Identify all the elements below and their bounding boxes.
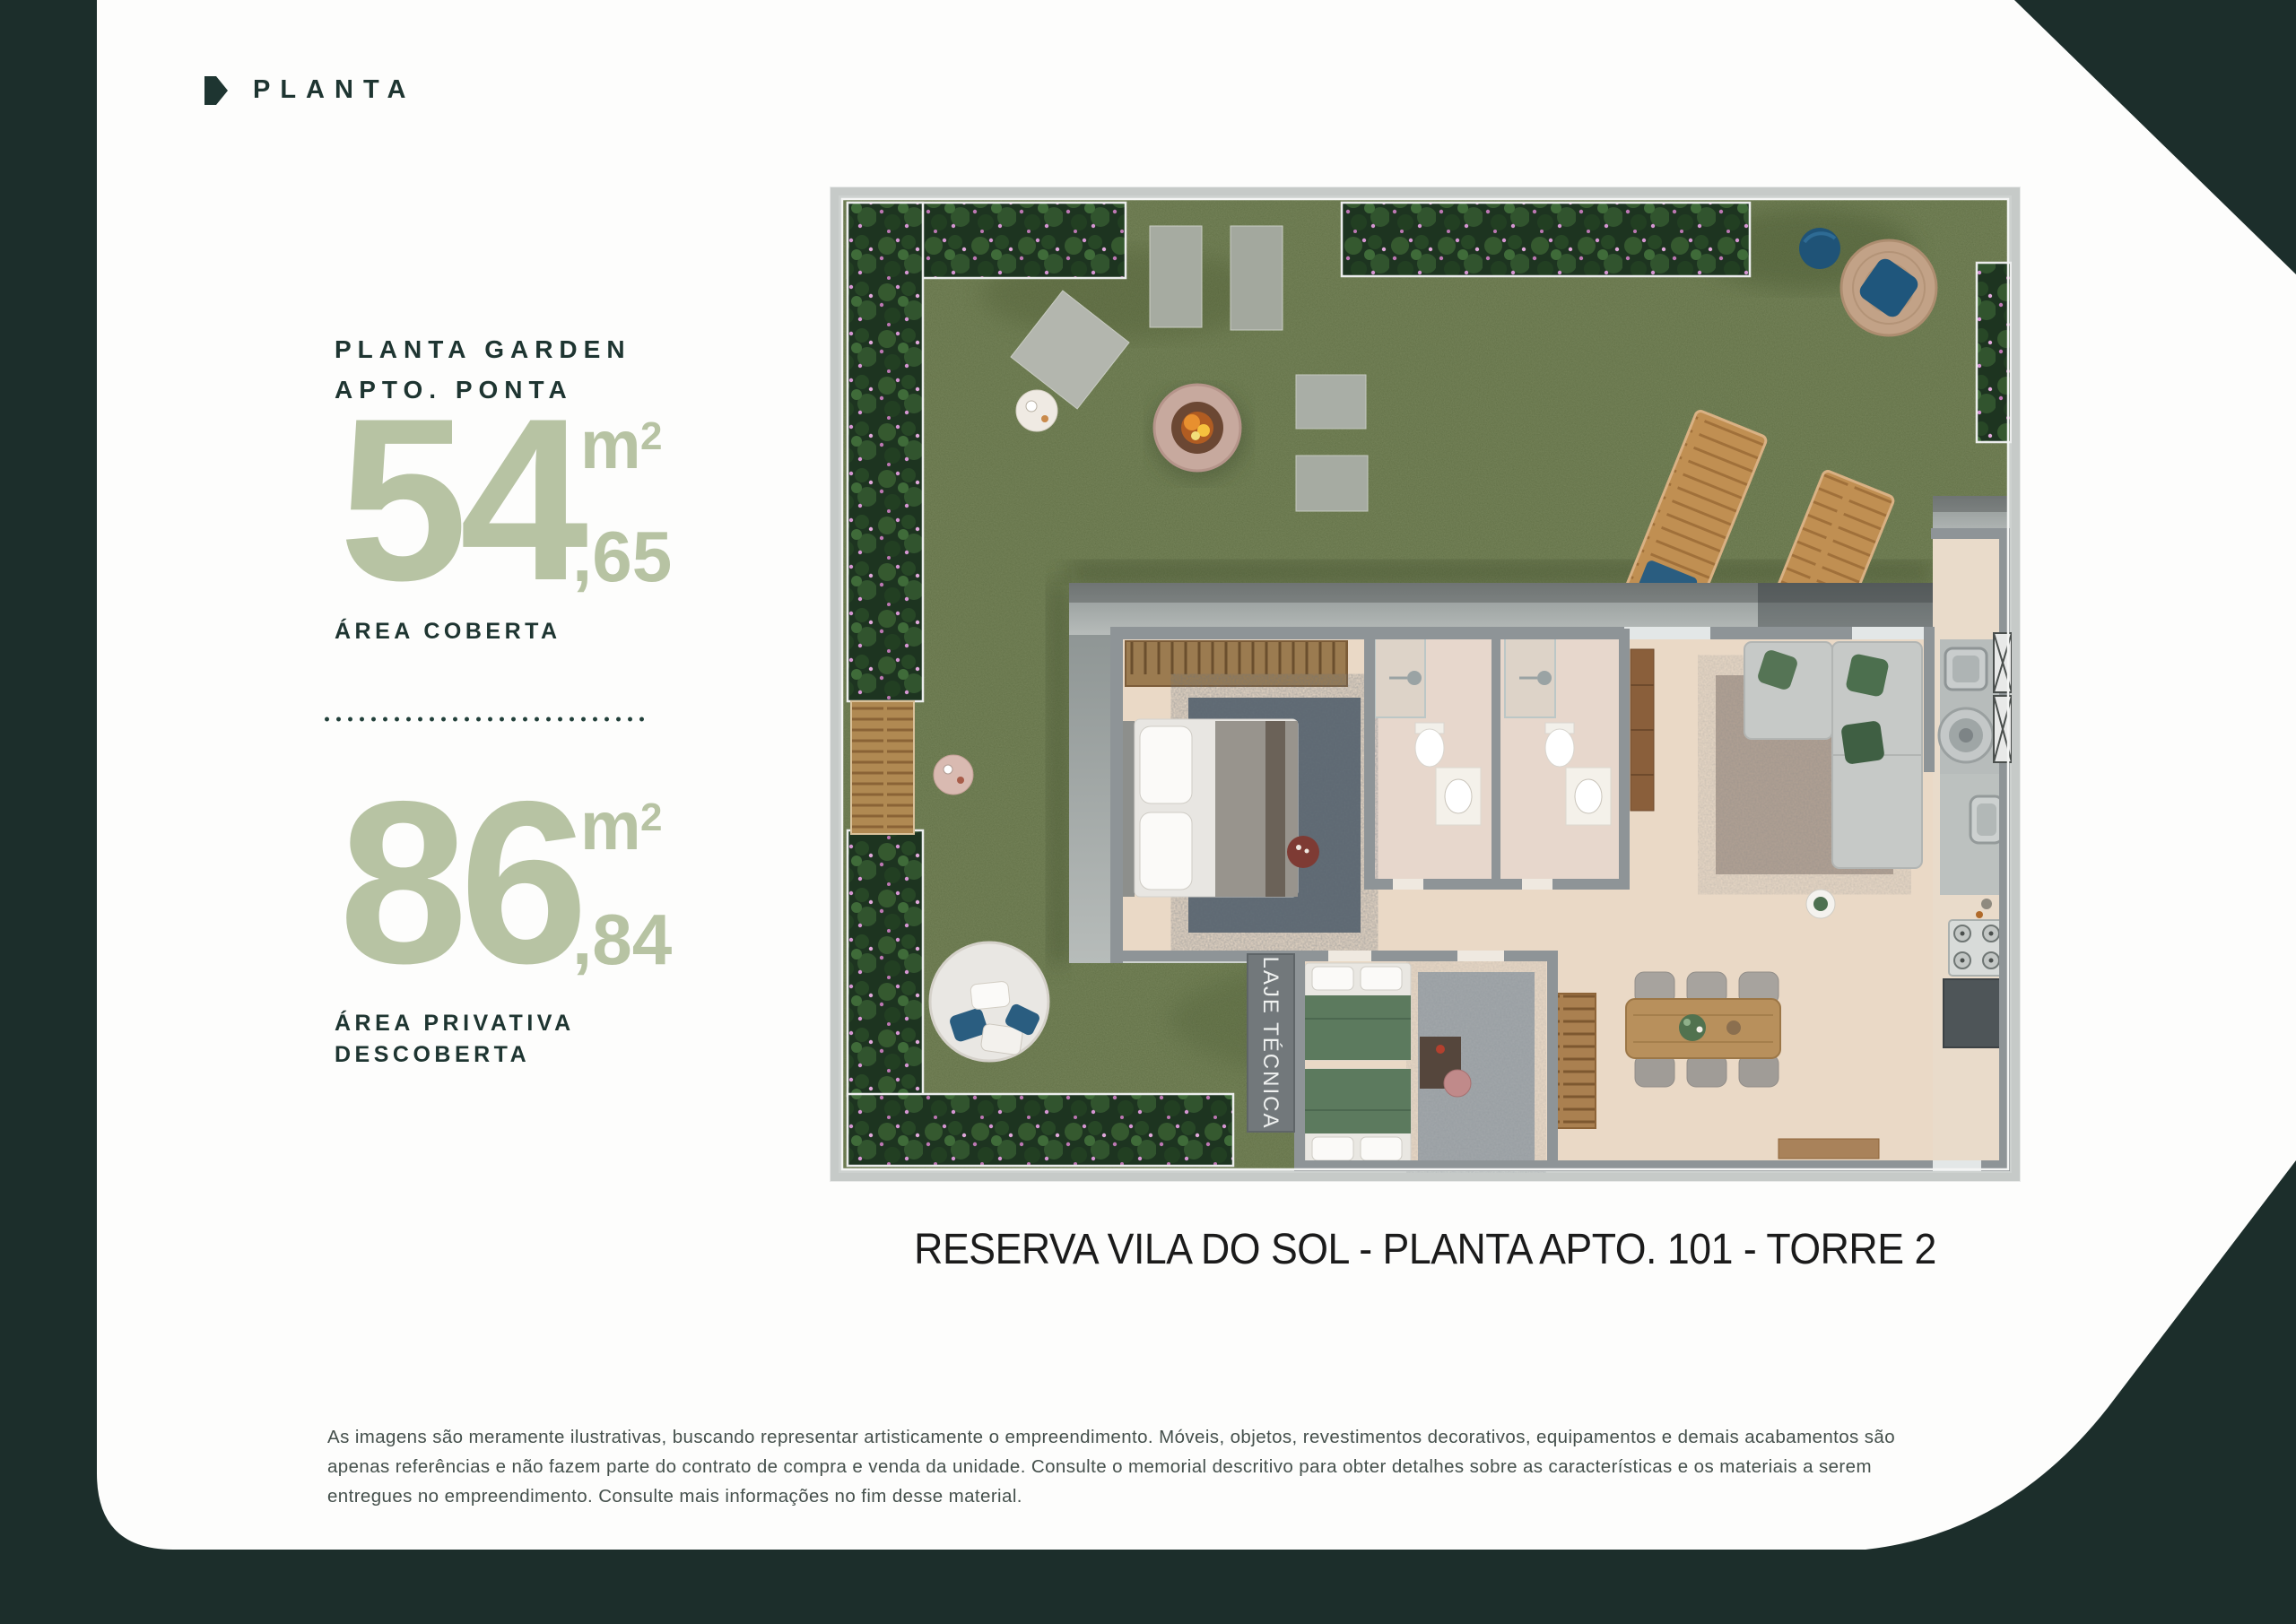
- round-ottoman: [1287, 836, 1319, 868]
- private-area-unit-sup: 2: [640, 798, 662, 838]
- covered-area-stat: 54 m 2 ,65: [339, 408, 752, 632]
- private-area-label-line2: DESCOBERTA: [335, 1042, 530, 1068]
- exercise-mat: [1231, 226, 1283, 330]
- floorplan-caption: RESERVA VILA DO SOL - PLANTA APTO. 101 -…: [871, 1225, 1979, 1274]
- card-content: PLANTA PLANTA GARDEN APTO. PONTA 54 m 2 …: [0, 0, 2296, 1624]
- garden-table: [934, 755, 973, 795]
- plan-subtitle-line1: PLANTA GARDEN: [335, 335, 631, 364]
- covered-area-decimal: ,65: [572, 521, 672, 593]
- hallway: [1631, 649, 1654, 811]
- garden-bench: [851, 701, 914, 834]
- covered-area-unit-sup: 2: [640, 417, 662, 456]
- dotted-divider: [321, 716, 649, 722]
- dining-chair: [1687, 1055, 1726, 1087]
- wardrobe: [1126, 641, 1347, 686]
- private-area-decimal: ,84: [572, 904, 672, 976]
- legal-disclaimer: As imagens são meramente ilustrativas, b…: [327, 1422, 1942, 1511]
- private-area-stat: 86 m 2 ,84: [339, 789, 752, 1013]
- page-title: PLANTA: [253, 75, 415, 105]
- wood-shelf: [1552, 994, 1596, 1128]
- covered-area-value: 54: [339, 384, 580, 615]
- covered-area-label: ÁREA COBERTA: [335, 619, 561, 645]
- floorplan-rendering: LAJE TÉCNICA: [830, 187, 2021, 1182]
- stone-paver: [1296, 375, 1366, 429]
- single-bed: [1305, 963, 1411, 1060]
- entry-bench: [1779, 1139, 1879, 1159]
- desk-chair: [1444, 1070, 1471, 1097]
- double-bed: [1122, 719, 1298, 897]
- dining-chair: [1635, 1055, 1674, 1087]
- wicker-daybed: [1841, 240, 1936, 335]
- master-bedroom: [1122, 641, 1361, 933]
- planta-arrow-icon: [204, 76, 228, 105]
- side-table: [1016, 390, 1057, 431]
- round-daybed: [930, 942, 1048, 1061]
- private-area-label-line1: ÁREA PRIVATIVA: [335, 1011, 575, 1037]
- brochure-page: PLANTA PLANTA GARDEN APTO. PONTA 54 m 2 …: [0, 0, 2296, 1624]
- exercise-mat: [1150, 226, 1202, 327]
- private-area-unit: m: [580, 793, 641, 861]
- single-bed: [1305, 1069, 1411, 1166]
- covered-area-unit: m: [580, 412, 641, 480]
- dining-chair: [1739, 1055, 1779, 1087]
- private-area-value: 86: [339, 767, 580, 998]
- laje-tecnica-strip: LAJE TÉCNICA: [1248, 954, 1294, 1132]
- laje-tecnica-label: LAJE TÉCNICA: [1258, 957, 1283, 1130]
- stone-paver: [1296, 456, 1368, 511]
- refrigerator: [1944, 979, 2008, 1047]
